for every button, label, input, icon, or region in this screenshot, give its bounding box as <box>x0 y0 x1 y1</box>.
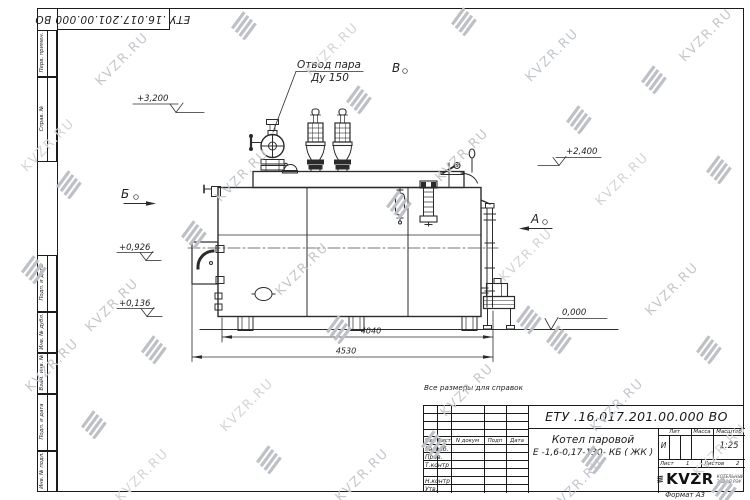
reference-note: Все размеры для справок <box>424 383 523 392</box>
lit-label: Лит <box>658 429 691 435</box>
kvzr-logo-text: KVZR <box>666 470 714 488</box>
col-podp: Подп <box>484 438 506 444</box>
row-nkontr: Н.контр <box>425 478 450 485</box>
col-doc: N докум <box>451 438 484 444</box>
margin-divider <box>57 8 58 492</box>
row-utv: Утв. <box>425 486 438 493</box>
margin-block-perv: Перв. примен. <box>37 30 57 77</box>
lit-value: И <box>658 441 669 450</box>
row-razrab: Разраб. <box>425 446 449 453</box>
col-data: Дата <box>506 438 528 444</box>
format-label: Формат А3 <box>620 491 750 499</box>
margin-block-podp2: Подп. и дата <box>37 394 57 451</box>
masshtab-label: Масштаб <box>713 429 745 435</box>
corner-stamp: ЕТУ .16.017.201.00.000 ВО <box>57 8 170 30</box>
col-list: Лист <box>437 438 451 444</box>
manufacturer-logo: KVZR КОТЕЛЬНЫЙ ЗАВОД РЭУ <box>657 466 744 492</box>
corner-stamp-number: ЕТУ .16.017.201.00.000 ВО <box>35 13 190 25</box>
row-prov: Пров. <box>425 454 442 461</box>
row-tkontr: Т.контр <box>425 462 449 469</box>
margin-block-sprav: Справ. № <box>37 77 57 162</box>
title-doc-number: ЕТУ .16.017.201.00.000 ВО <box>528 409 745 424</box>
col-izm: Изм <box>424 438 437 444</box>
margin-block-podp1: Подп. и дата <box>37 255 57 312</box>
logo-subtitle-2: ЗАВОД РЭУ <box>717 479 744 484</box>
drawing-sheet: 4040 4530 +3,200 +2,400 <box>0 0 750 500</box>
product-designation: Е -1,6-0,17-130- КБ ( ЖК ) <box>528 448 658 458</box>
margin-block-vzam: Взам. инв. № <box>37 353 57 394</box>
product-name: Котел паровой <box>528 434 658 446</box>
margin-block-podl: Инв. № подл. <box>37 451 57 492</box>
kvzr-spring-icon <box>657 470 663 488</box>
margin-block-dubl: Инв. № дубл. <box>37 312 57 353</box>
masshtab-value: 1:25 <box>713 441 745 451</box>
massa-label: Масса <box>691 429 713 435</box>
